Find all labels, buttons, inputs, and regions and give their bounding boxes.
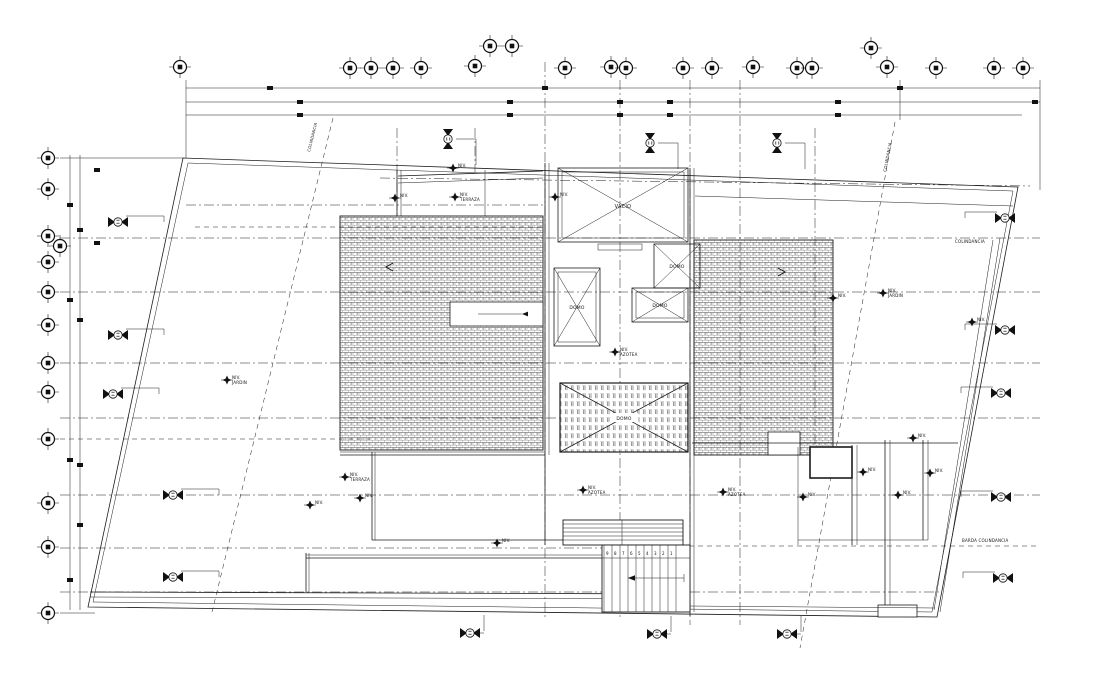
level-marker-azotea-core: NIV. AZOTEA <box>609 347 638 357</box>
grid-bubbles-left <box>37 147 71 624</box>
louver-pergola <box>563 520 683 545</box>
grid-bubbles-top <box>169 35 1034 79</box>
level-marker-jardin-right: NIV. JARDIN <box>877 288 903 298</box>
floor-plan-drawing: 9 8 7 6 5 4 3 2 1 NIV. TERRAZA <box>0 0 1100 679</box>
stair-number: 1 <box>670 551 673 556</box>
svg-text:TERRAZA: TERRAZA <box>349 477 370 482</box>
stair-number: 7 <box>622 551 625 556</box>
corner-note: COLINDANCIA <box>955 239 985 244</box>
cad-sheet: 9 8 7 6 5 4 3 2 1 NIV. TERRAZA <box>0 0 1100 679</box>
niv-label: NIV. <box>977 317 985 322</box>
svg-text:AZOTEA: AZOTEA <box>620 352 638 357</box>
svg-text:AZOTEA: AZOTEA <box>728 492 746 497</box>
section-marker-left-5 <box>163 571 219 582</box>
niv-label: NIV. <box>458 163 466 168</box>
svg-text:JARDIN: JARDIN <box>887 293 903 298</box>
domo-label-a: DOMO <box>569 305 584 311</box>
section-marker-right-1 <box>965 212 1015 223</box>
section-marker-left-2 <box>108 329 164 340</box>
niv-label: NIV. <box>935 468 943 473</box>
niv-label: NIV. <box>315 500 323 505</box>
domo-label-b: DOMO <box>669 264 684 270</box>
section-marker-left-1 <box>108 216 164 227</box>
section-marker-top-3 <box>772 133 805 169</box>
stairs: 9 8 7 6 5 4 3 2 1 <box>602 545 690 612</box>
barda-note: BARDA COLINDANCIA <box>962 538 1009 543</box>
section-marker-bottom-2 <box>647 616 671 639</box>
niv-label: NIV. <box>838 293 846 298</box>
level-marker-jardin-left: NIV. JARDIN <box>221 375 247 385</box>
niv-label: NIV. <box>808 492 816 497</box>
section-marker-right-5 <box>963 572 1013 583</box>
svg-text:AZOTEA: AZOTEA <box>588 490 606 495</box>
section-marker-top-1 <box>443 129 476 165</box>
niv-label: NIV. <box>560 192 568 197</box>
svg-text:JARDIN: JARDIN <box>231 380 247 385</box>
stair-number: 3 <box>654 551 657 556</box>
level-marker-terraza-top: NIV. TERRAZA <box>449 192 480 202</box>
vacio-label: VACIO <box>615 204 632 210</box>
domo-label-c: DOMO <box>652 303 667 309</box>
section-marker-left-3 <box>103 388 159 399</box>
stair-number: 4 <box>646 551 649 556</box>
level-marker-azotea-mid: NIV. AZOTEA <box>577 485 606 495</box>
section-marker-bottom-3 <box>777 616 801 639</box>
roof-hatch-right <box>694 240 833 455</box>
niv-label: NIV. <box>502 538 510 543</box>
roof-hatch-left <box>340 216 543 450</box>
niv-label: NIV. <box>918 433 926 438</box>
domo-label-large: DOMO <box>616 416 631 422</box>
section-marker-top-2 <box>645 133 678 169</box>
svg-text:TERRAZA: TERRAZA <box>459 197 480 202</box>
niv-label: NIV. <box>365 493 373 498</box>
rooftop-equipment-box <box>810 447 852 478</box>
stair-number: 6 <box>630 551 633 556</box>
colindancia-note-left: COLINDANCIA <box>306 122 318 152</box>
inner-walls <box>90 163 1013 617</box>
section-marker-right-4 <box>961 491 1011 502</box>
level-marker-azotea-right: NIV. AZOTEA <box>717 487 746 497</box>
niv-label: NIV. <box>903 490 911 495</box>
niv-label: NIV. <box>868 467 876 472</box>
stair-number: 9 <box>606 551 609 556</box>
section-marker-left-4 <box>163 489 219 500</box>
level-marker-terraza-low: NIV. TERRAZA <box>339 472 370 482</box>
stair-number: 8 <box>614 551 617 556</box>
colindancia-note-right: COLINDANCIA <box>882 142 893 172</box>
roof-notch-right <box>768 432 800 455</box>
grid-centerlines <box>60 62 1040 625</box>
niv-label: NIV. <box>400 193 408 198</box>
stair-number: 5 <box>638 551 641 556</box>
section-marker-right-2 <box>965 324 1015 335</box>
section-marker-bottom-1 <box>460 615 484 638</box>
stair-number: 2 <box>662 551 665 556</box>
